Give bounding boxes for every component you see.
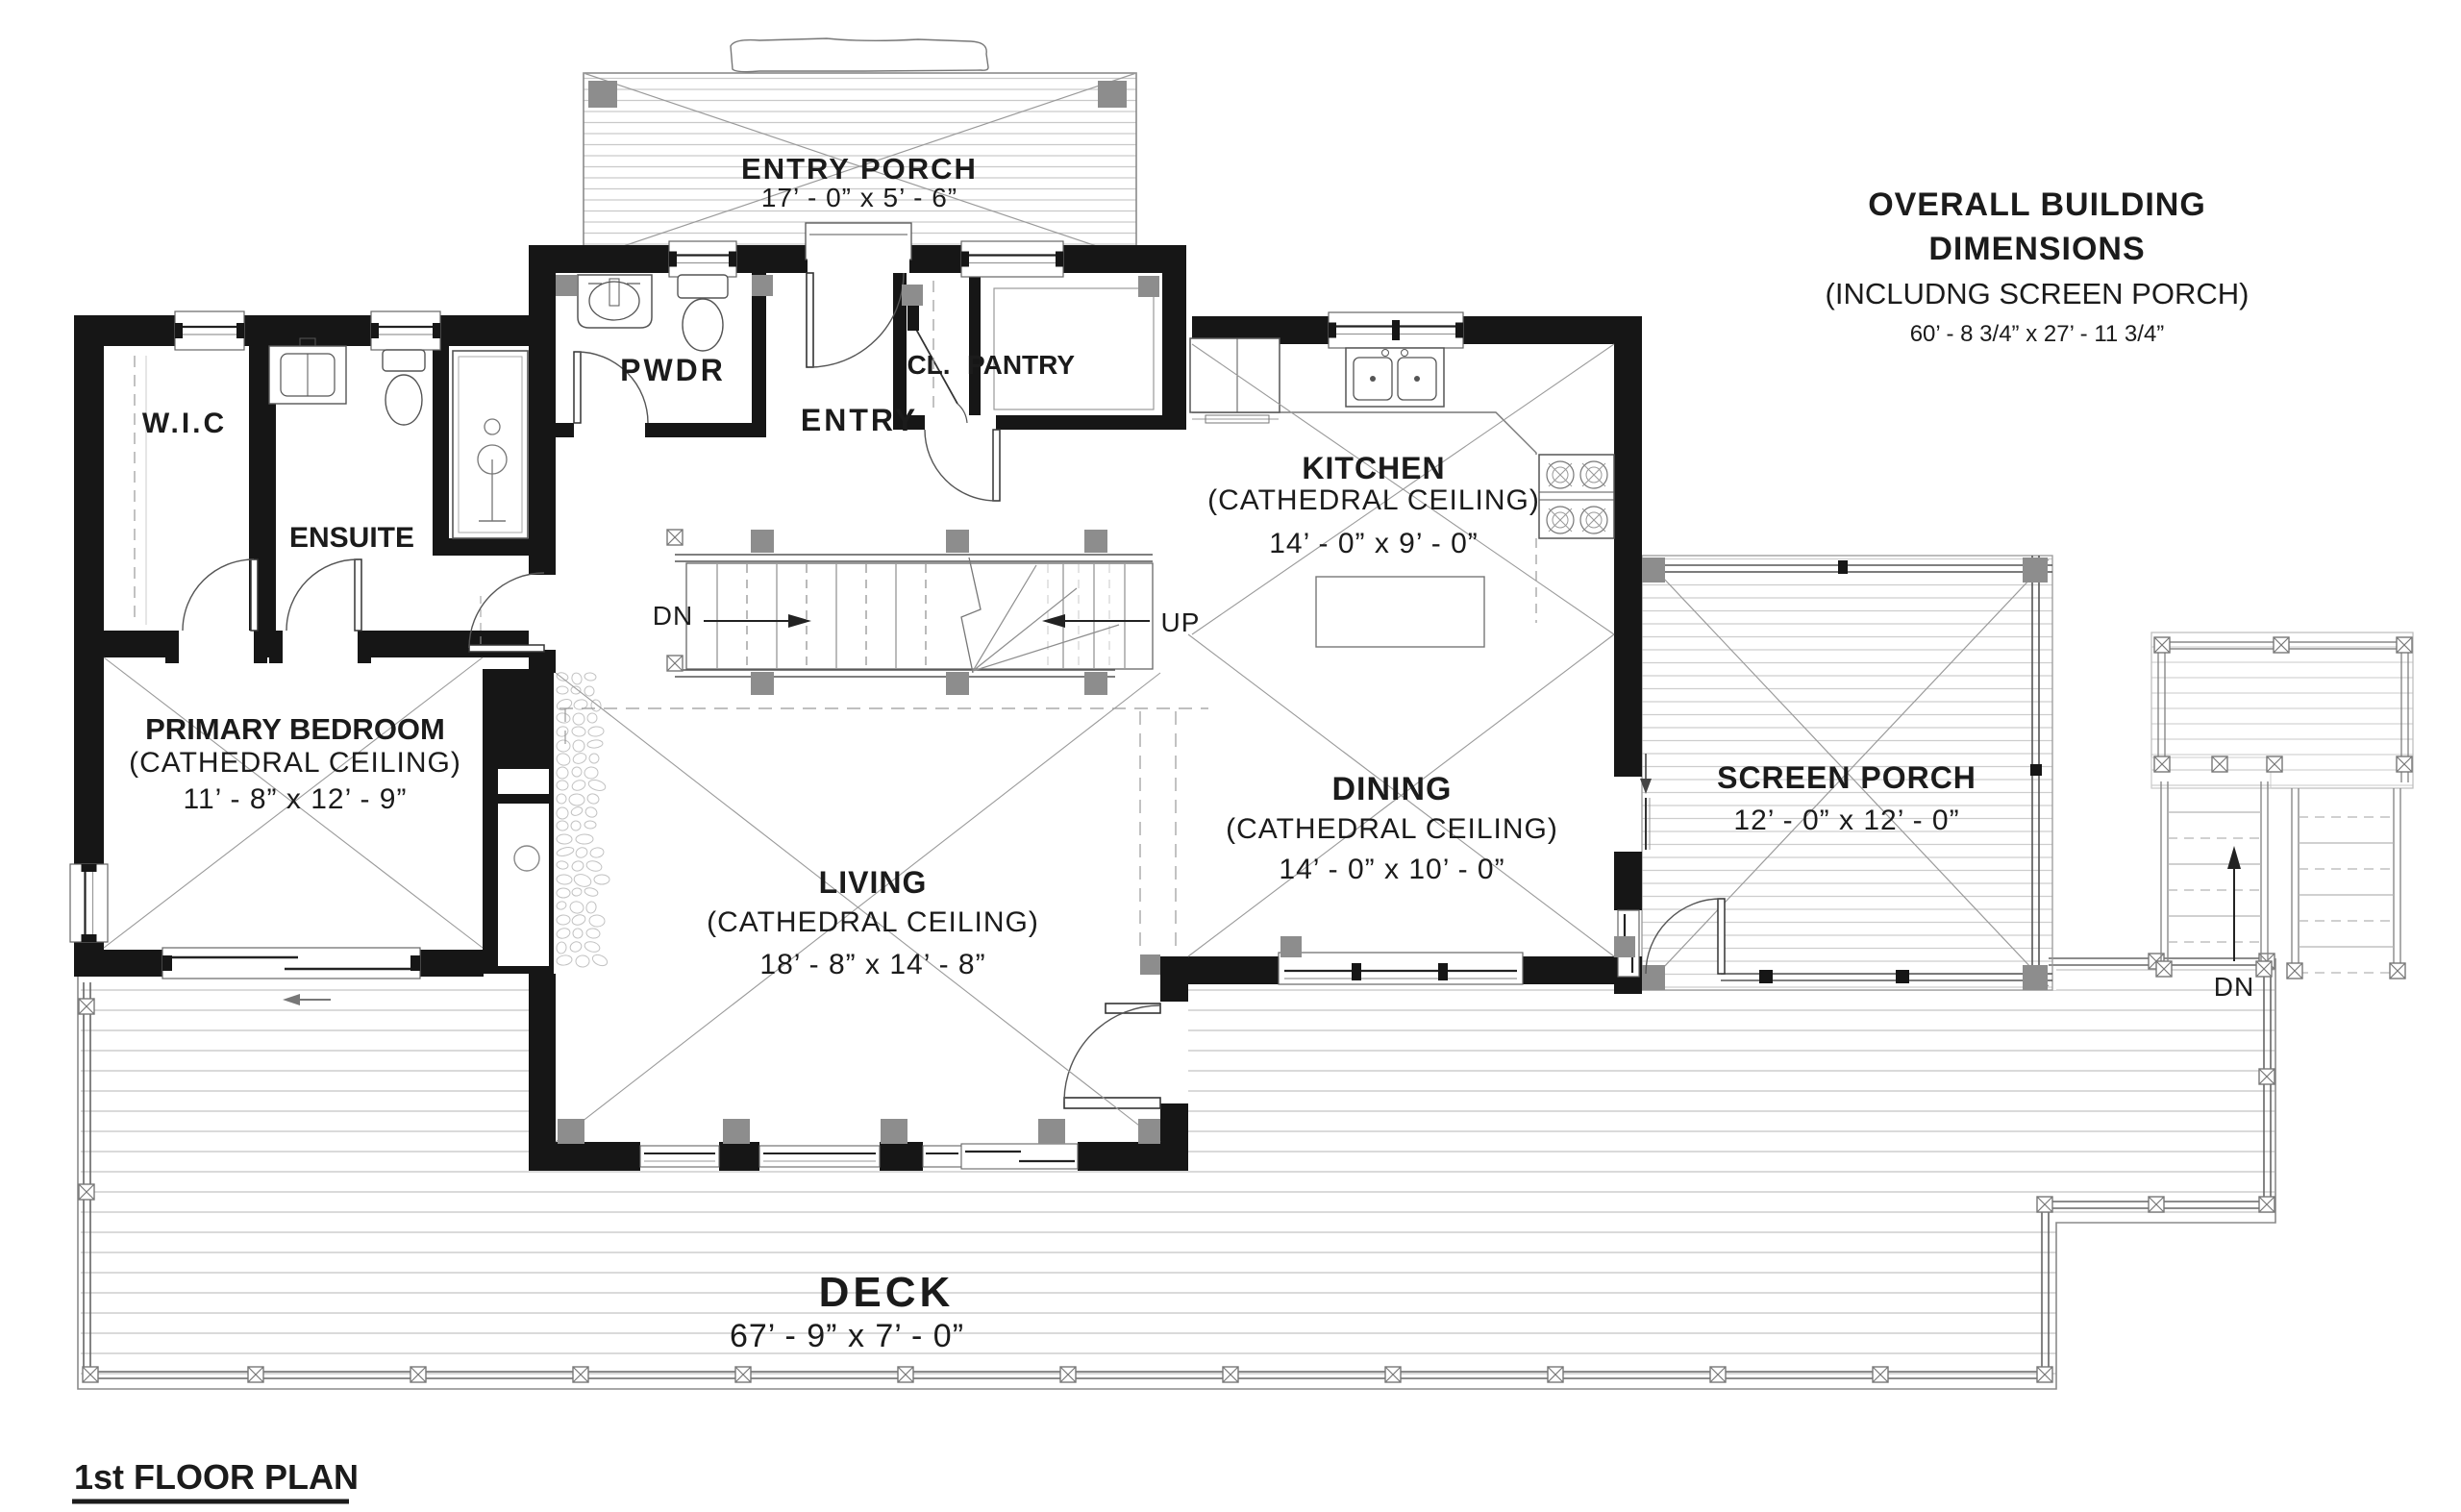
svg-text:LIVING: LIVING — [819, 865, 928, 900]
svg-text:OVERALL BUILDING: OVERALL BUILDING — [1868, 186, 2206, 223]
svg-text:17’ - 0” x 5’ - 6”: 17’ - 0” x 5’ - 6” — [761, 183, 957, 212]
svg-text:CL.: CL. — [907, 350, 950, 380]
svg-text:ENSUITE: ENSUITE — [289, 522, 414, 554]
svg-text:(CATHEDRAL CEILING): (CATHEDRAL CEILING) — [129, 747, 461, 779]
svg-text:60’ - 8 3/4” x 27’ - 11 3/4”: 60’ - 8 3/4” x 27’ - 11 3/4” — [1910, 321, 2165, 347]
svg-text:(CATHEDRAL CEILING): (CATHEDRAL CEILING) — [1226, 813, 1558, 845]
svg-text:12’ - 0” x 12’ - 0”: 12’ - 0” x 12’ - 0” — [1733, 805, 1959, 836]
svg-text:PRIMARY BEDROOM: PRIMARY BEDROOM — [145, 712, 445, 746]
svg-text:DINING: DINING — [1332, 771, 1453, 807]
svg-text:PWDR: PWDR — [620, 353, 726, 387]
svg-text:W.I.C: W.I.C — [142, 408, 227, 439]
svg-text:1st FLOOR PLAN: 1st FLOOR PLAN — [74, 1457, 359, 1497]
svg-text:ENTRY PORCH: ENTRY PORCH — [741, 152, 978, 186]
svg-text:SCREEN PORCH: SCREEN PORCH — [1717, 760, 1976, 795]
svg-text:(CATHEDRAL CEILING): (CATHEDRAL CEILING) — [707, 906, 1039, 938]
svg-text:DIMENSIONS: DIMENSIONS — [1928, 231, 2145, 267]
svg-text:14’ - 0” x 9’ - 0”: 14’ - 0” x 9’ - 0” — [1269, 528, 1479, 559]
svg-text:67’ - 9” x 7’ - 0”: 67’ - 9” x 7’ - 0” — [730, 1318, 964, 1354]
svg-text:DN: DN — [2214, 972, 2254, 1002]
svg-text:18’ - 8” x 14’ - 8”: 18’ - 8” x 14’ - 8” — [759, 949, 985, 980]
svg-text:KITCHEN: KITCHEN — [1302, 451, 1445, 485]
svg-text:(INCLUDNG SCREEN PORCH): (INCLUDNG SCREEN PORCH) — [1826, 277, 2250, 310]
svg-text:14’ - 0” x 10’ - 0”: 14’ - 0” x 10’ - 0” — [1279, 854, 1504, 885]
svg-text:ENTRY: ENTRY — [801, 403, 918, 437]
svg-text:PANTRY: PANTRY — [967, 350, 1075, 380]
svg-text:DN: DN — [653, 601, 693, 631]
svg-text:DECK: DECK — [819, 1269, 955, 1316]
svg-text:(CATHEDRAL CEILING): (CATHEDRAL CEILING) — [1207, 484, 1540, 516]
svg-text:11’ - 8” x 12’ - 9”: 11’ - 8” x 12’ - 9” — [184, 783, 408, 815]
